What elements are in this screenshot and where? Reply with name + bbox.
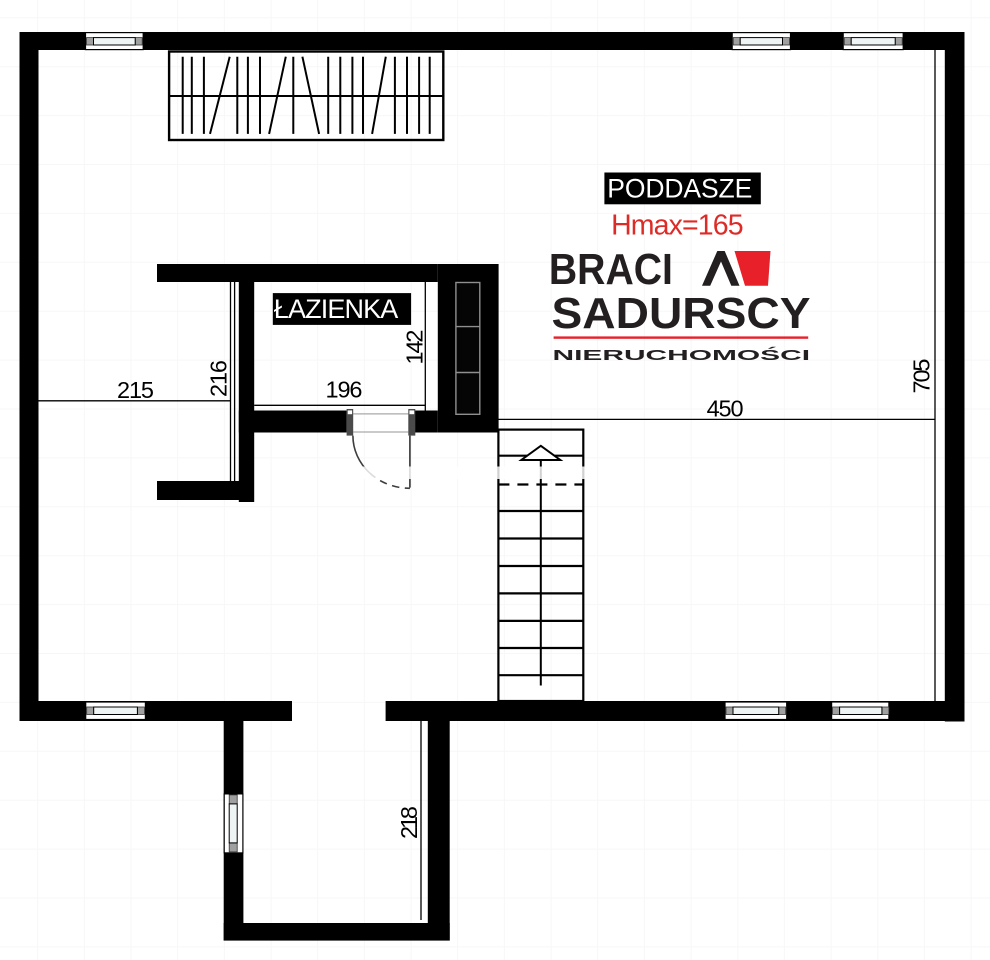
svg-text:705: 705 (909, 359, 935, 394)
svg-text:216: 216 (206, 360, 232, 397)
svg-text:NIERUCHOMOŚCI: NIERUCHOMOŚCI (553, 346, 811, 364)
svg-text:PODDASZE: PODDASZE (607, 174, 752, 204)
svg-text:Hmax=165: Hmax=165 (611, 210, 744, 242)
svg-text:SADURSCY: SADURSCY (552, 289, 811, 338)
svg-text:215: 215 (117, 377, 154, 403)
svg-text:142: 142 (402, 330, 428, 365)
svg-text:BRACI: BRACI (549, 246, 673, 294)
svg-text:196: 196 (326, 377, 363, 403)
svg-text:ŁAZIENKA: ŁAZIENKA (274, 294, 399, 324)
svg-text:218: 218 (396, 806, 422, 839)
svg-text:450: 450 (707, 395, 744, 421)
